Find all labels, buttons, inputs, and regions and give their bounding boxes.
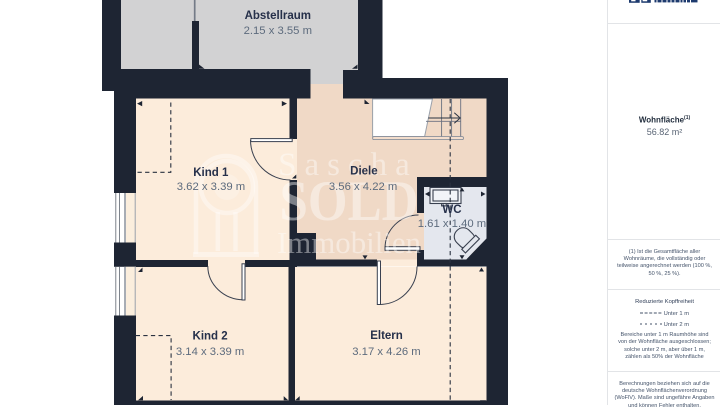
svg-text:WC: WC (442, 204, 461, 216)
svg-text:Kind 1: Kind 1 (193, 167, 229, 179)
svg-text:Abstellraum: Abstellraum (245, 10, 311, 22)
svg-text:3.56 x 4.22 m: 3.56 x 4.22 m (329, 181, 397, 193)
svg-text:1.61 x 1.40 m: 1.61 x 1.40 m (418, 218, 486, 230)
svg-text:SOLD: SOLD (280, 170, 419, 233)
svg-text:3.14 x 3.39 m: 3.14 x 3.39 m (176, 346, 244, 358)
svg-text:3.17 x 4.26 m: 3.17 x 4.26 m (352, 346, 420, 358)
svg-text:Kind 2: Kind 2 (193, 330, 228, 342)
svg-text:Diele: Diele (350, 166, 378, 178)
svg-text:3.62 x 3.39 m: 3.62 x 3.39 m (177, 181, 245, 193)
svg-text:Eltern: Eltern (370, 330, 403, 342)
svg-text:2.15 x 3.55 m: 2.15 x 3.55 m (244, 25, 312, 37)
svg-text:Immobilien: Immobilien (277, 225, 421, 260)
